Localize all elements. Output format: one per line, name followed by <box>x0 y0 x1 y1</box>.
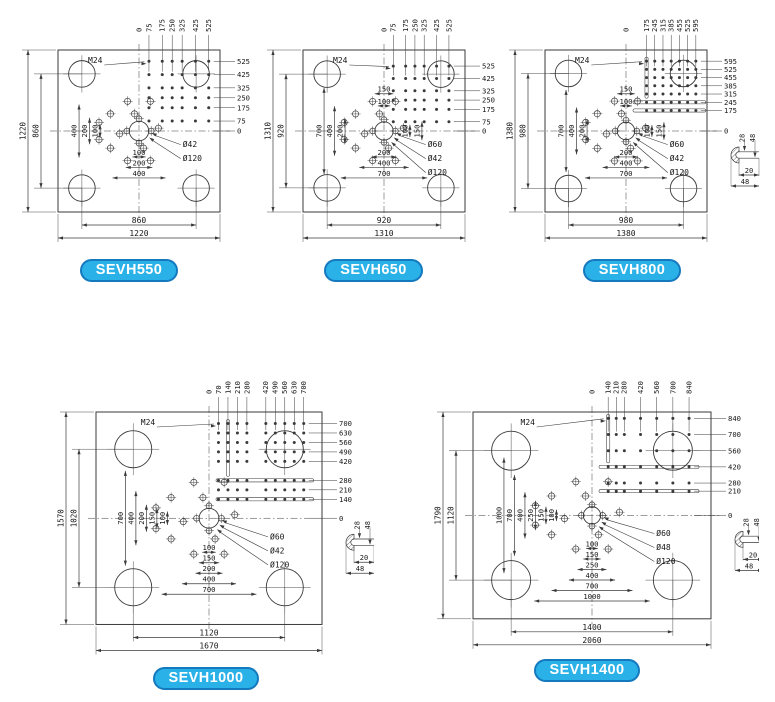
hole-diameter-label: Ø120 <box>427 167 446 177</box>
bolt-hole-dot <box>391 77 394 80</box>
dim-label: 400 <box>133 169 146 178</box>
bolt-hole-dot <box>236 431 239 434</box>
tick-label: 700 <box>339 419 352 428</box>
bolt-hole-dot <box>670 109 673 112</box>
bolt-hole-dot <box>226 488 229 491</box>
tick-label: 75 <box>388 23 397 32</box>
bolt-hole-dot <box>217 498 220 501</box>
tick-label: 175 <box>724 106 737 115</box>
dim-label: 2060 <box>582 636 601 645</box>
bolt-hole-dot <box>245 450 248 453</box>
bolt-hole-dot <box>161 106 164 109</box>
tick-label: 140 <box>339 495 352 504</box>
tick-label: 525 <box>482 62 495 71</box>
bolt-hole-dot <box>274 479 277 482</box>
tick-label: 0 <box>724 127 728 136</box>
bolt-hole-dot <box>639 465 642 468</box>
bolt-hole-dot <box>147 73 150 76</box>
dim-label: 400 <box>567 125 576 138</box>
bolt-hole-dot <box>217 488 220 491</box>
dim-label: 1570 <box>56 509 65 528</box>
tick-label: 0 <box>587 390 596 394</box>
tick-label: 175 <box>482 105 495 114</box>
bolt-hole-dot <box>171 96 174 99</box>
bolt-hole-dot <box>422 120 425 123</box>
bolt-hole-dot <box>264 450 267 453</box>
plate-drawing-layer: 0701402102804204905606307007006305604904… <box>56 381 374 654</box>
dim-label: 20 <box>745 167 753 175</box>
plate-drawing-layer: 0140210280420560700840840700560420280210… <box>433 381 759 649</box>
bolt-hole-dot <box>447 89 450 92</box>
bolt-hole-dot <box>181 96 184 99</box>
dim-label: 150 <box>203 554 216 563</box>
bolt-hole-dot <box>607 449 610 452</box>
bolt-hole-dot <box>302 460 305 463</box>
tick-label: 0 <box>482 127 486 136</box>
bolt-hole-dot <box>694 109 697 112</box>
bolt-hole-dot <box>447 77 450 80</box>
bolt-hole-dot <box>236 460 239 463</box>
bolt-hole-dot <box>422 77 425 80</box>
top-row: 075175250325425525525425325250175750M241… <box>0 6 775 282</box>
bolt-hole-dot <box>283 431 286 434</box>
dim-label: 860 <box>31 124 40 138</box>
bolt-hole-dot <box>688 465 691 468</box>
bolt-hole-dot <box>694 68 697 71</box>
tick-label: 210 <box>339 485 352 494</box>
bolt-hole-dot <box>661 76 664 79</box>
dim-label: 100 <box>547 509 556 522</box>
bolt-hole-dot <box>391 89 394 92</box>
bolt-hole-dot <box>181 106 184 109</box>
tick-label: 840 <box>684 381 693 394</box>
dim-label: 150 <box>654 125 663 138</box>
tick-label: 490 <box>339 448 352 457</box>
dim-label: 920 <box>276 124 285 138</box>
bolt-hole-dot <box>264 431 267 434</box>
dim-label: 1670 <box>199 641 218 650</box>
dim-label: 150 <box>377 85 390 94</box>
tick-label: 560 <box>728 446 741 455</box>
tick-label: 425 <box>191 19 200 32</box>
bolt-hole-dot <box>678 93 681 96</box>
bolt-hole-dot <box>194 106 197 109</box>
bolt-hole-dot <box>245 498 248 501</box>
bolt-hole-dot <box>194 86 197 89</box>
bolt-hole-dot <box>293 450 296 453</box>
bolt-hole-dot <box>293 441 296 444</box>
bolt-hole-dot <box>404 108 407 111</box>
tick-label: 250 <box>237 93 250 102</box>
bolt-hole-dot <box>607 433 610 436</box>
bolt-hole-dot <box>435 77 438 80</box>
dim-label: 400 <box>377 158 390 167</box>
dim-label: 48 <box>741 178 749 186</box>
tick-label: 420 <box>728 462 741 471</box>
bolt-hole-dot <box>274 460 277 463</box>
bolt-hole-dot <box>226 498 229 501</box>
bolt-hole-dot <box>264 498 267 501</box>
bolt-hole-dot <box>615 465 618 468</box>
dim-label: 980 <box>518 124 527 138</box>
bolt-hole-dot <box>435 89 438 92</box>
dim-label: 200 <box>377 148 390 157</box>
bolt-hole-dot <box>404 89 407 92</box>
dim-label: 200 <box>137 512 146 525</box>
bolt-hole-dot <box>217 450 220 453</box>
bolt-hole-dot <box>207 96 210 99</box>
dim-label: 400 <box>324 125 333 138</box>
tick-label: 525 <box>444 19 453 32</box>
bolt-hole-dot <box>274 488 277 491</box>
detail-dim-label: 28 <box>739 134 747 142</box>
thread-size-label: M24 <box>333 56 348 65</box>
dim-label: 700 <box>314 125 323 138</box>
bolt-hole-dot <box>293 431 296 434</box>
bolt-hole-dot <box>645 93 648 96</box>
dim-label: 200 <box>133 158 146 167</box>
bolt-hole-dot <box>678 109 681 112</box>
bolt-hole-dot <box>274 498 277 501</box>
bolt-hole-dot <box>661 84 664 87</box>
bolt-hole-dot <box>694 101 697 104</box>
plate-drawing-sevh1400: 0140210280420560700840840700560420280210… <box>415 370 759 656</box>
tick-label: 325 <box>482 86 495 95</box>
dim-label: 20 <box>749 551 757 559</box>
bolt-hole-dot <box>283 498 286 501</box>
platen-drawings-board: 075175250325425525525425325250175750M241… <box>0 0 775 702</box>
bolt-hole-dot <box>264 460 267 463</box>
detail-dim-label: 48 <box>753 518 759 526</box>
bolt-hole-dot <box>678 68 681 71</box>
bolt-hole-dot <box>283 441 286 444</box>
tick-label: 0 <box>134 28 143 32</box>
tick-label: 630 <box>290 381 299 394</box>
edge-slot-section <box>735 531 743 547</box>
tick-label: 630 <box>339 429 352 438</box>
tick-label: 75 <box>237 117 246 126</box>
bolt-hole-dot <box>694 93 697 96</box>
bolt-hole-dot <box>623 490 626 493</box>
bolt-hole-dot <box>688 490 691 493</box>
bolt-hole-dot <box>671 465 674 468</box>
thread-size-label: M24 <box>521 418 536 427</box>
tick-label: 175 <box>158 19 167 32</box>
bolt-hole-dot <box>302 479 305 482</box>
bolt-hole-dot <box>181 120 184 123</box>
bolt-hole-dot <box>639 433 642 436</box>
tick-label: 0 <box>339 514 343 523</box>
dim-label: 100 <box>133 148 146 157</box>
tick-label: 0 <box>621 28 630 32</box>
dim-label: 1790 <box>433 506 442 525</box>
bolt-hole-dot <box>623 449 626 452</box>
bolt-hole-dot <box>686 109 689 112</box>
bolt-hole-dot <box>615 490 618 493</box>
dim-label: 48 <box>745 562 753 570</box>
bolt-hole-dot <box>653 93 656 96</box>
bolt-hole-dot <box>147 96 150 99</box>
bolt-hole-dot <box>391 99 394 102</box>
bolt-hole-dot <box>645 68 648 71</box>
thread-size-label: M24 <box>575 56 590 65</box>
bolt-hole-dot <box>678 76 681 79</box>
bolt-hole-dot <box>435 108 438 111</box>
tick-label: 0 <box>379 28 388 32</box>
bolt-hole-dot <box>245 460 248 463</box>
bolt-hole-dot <box>653 101 656 104</box>
bolt-hole-dot <box>422 108 425 111</box>
dim-label: 700 <box>505 509 514 522</box>
tick-label: 420 <box>636 381 645 394</box>
bolt-hole-dot <box>447 120 450 123</box>
dim-label: 150 <box>536 509 545 522</box>
tick-label: 75 <box>482 117 491 126</box>
tick-label: 700 <box>668 381 677 394</box>
dim-label: 100 <box>642 125 651 138</box>
bolt-hole-dot <box>171 73 174 76</box>
tick-label: 280 <box>339 476 352 485</box>
bolt-hole-dot <box>147 106 150 109</box>
dim-label: 400 <box>69 125 78 138</box>
dim-label: 700 <box>620 169 633 178</box>
tick-label: 700 <box>728 430 741 439</box>
hole-diameter-label: Ø42 <box>427 153 442 163</box>
bolt-hole-dot <box>236 441 239 444</box>
bolt-hole-dot <box>302 450 305 453</box>
tick-label: 0 <box>237 127 241 136</box>
dim-label: 1310 <box>374 229 393 238</box>
tick-label: 560 <box>652 381 661 394</box>
bolt-hole-dot <box>302 488 305 491</box>
dim-label: 150 <box>412 125 421 138</box>
bolt-hole-dot <box>447 99 450 102</box>
bolt-hole-dot <box>694 84 697 87</box>
bolt-hole-dot <box>655 433 658 436</box>
bolt-hole-dot <box>226 479 229 482</box>
bolt-hole-dot <box>615 433 618 436</box>
hole-diameter-label: Ø60 <box>270 531 285 541</box>
hole-diameter-label: Ø48 <box>656 542 671 552</box>
dim-label: 400 <box>515 509 524 522</box>
bolt-hole-dot <box>236 488 239 491</box>
dim-label: 250 <box>586 560 599 569</box>
tick-label: 525 <box>237 57 250 66</box>
bolt-hole-dot <box>245 479 248 482</box>
bolt-hole-dot <box>147 120 150 123</box>
bottom-row: 0701402102804204905606307007006305604904… <box>0 370 775 690</box>
bolt-hole-dot <box>217 460 220 463</box>
detail-dim-label: 48 <box>749 134 757 142</box>
bolt-hole-dot <box>404 99 407 102</box>
bolt-hole-dot <box>435 120 438 123</box>
bolt-hole-dot <box>653 76 656 79</box>
bolt-hole-dot <box>688 449 691 452</box>
figure-sevh550: 075175250325425525525425325250175750M241… <box>8 6 250 282</box>
bolt-hole-dot <box>607 490 610 493</box>
hole-diameter-label: Ø60 <box>427 139 442 149</box>
detail-dim-label: 28 <box>354 521 362 529</box>
bolt-hole-dot <box>645 84 648 87</box>
plate-drawing-sevh1000: 0701402102804204905606307007006305604904… <box>38 370 374 664</box>
bolt-hole-dot <box>694 76 697 79</box>
bolt-hole-dot <box>245 488 248 491</box>
tick-label: 75 <box>144 23 153 32</box>
dim-label: 200 <box>203 564 216 573</box>
tick-label: 175 <box>401 19 410 32</box>
bolt-hole-dot <box>686 68 689 71</box>
plate-drawing-sevh550: 075175250325425525525425325250175750M241… <box>8 6 250 256</box>
tick-label: 325 <box>419 19 428 32</box>
bolt-hole-dot <box>207 106 210 109</box>
bolt-hole-dot <box>686 93 689 96</box>
bolt-hole-dot <box>236 479 239 482</box>
bolt-hole-dot <box>245 431 248 434</box>
thread-size-label: M24 <box>141 418 156 427</box>
hole-diameter-label: Ø42 <box>670 153 685 163</box>
tick-label: 0 <box>204 390 213 394</box>
hole-diameter-label: Ø60 <box>656 528 671 538</box>
dim-label: 20 <box>360 554 368 562</box>
bolt-hole-dot <box>181 86 184 89</box>
bolt-hole-dot <box>293 460 296 463</box>
bolt-hole-dot <box>670 76 673 79</box>
detail-dim-label: 28 <box>743 518 751 526</box>
dim-label: 200 <box>620 148 633 157</box>
tick-label: 425 <box>431 19 440 32</box>
tick-label: 595 <box>691 19 700 32</box>
bolt-hole-dot <box>404 77 407 80</box>
tick-label: 420 <box>261 381 270 394</box>
bolt-hole-dot <box>391 120 394 123</box>
bolt-hole-dot <box>264 479 267 482</box>
dim-label: 1380 <box>505 121 514 140</box>
dim-label: 150 <box>586 550 599 559</box>
bolt-hole-dot <box>207 120 210 123</box>
bolt-hole-dot <box>161 73 164 76</box>
bolt-hole-dot <box>413 120 416 123</box>
bolt-hole-dot <box>655 490 658 493</box>
bolt-hole-dot <box>447 108 450 111</box>
bolt-hole-dot <box>283 450 286 453</box>
bolt-hole-dot <box>413 89 416 92</box>
bolt-hole-dot <box>236 498 239 501</box>
t-slot <box>599 490 699 493</box>
dim-label: 150 <box>620 85 633 94</box>
dim-label: 1380 <box>616 229 635 238</box>
dim-label: 200 <box>577 125 586 138</box>
hole-diameter-label: Ø120 <box>270 559 289 569</box>
bolt-hole-dot <box>623 433 626 436</box>
bolt-hole-dot <box>413 77 416 80</box>
bolt-hole-dot <box>686 101 689 104</box>
model-badge-sevh550: SEVH550 <box>80 259 178 282</box>
dim-label: 400 <box>203 575 216 584</box>
bolt-hole-dot <box>194 96 197 99</box>
bolt-hole-dot <box>653 109 656 112</box>
dim-label: 1220 <box>129 229 148 238</box>
bolt-hole-dot <box>645 109 648 112</box>
bolt-hole-dot <box>422 89 425 92</box>
bolt-hole-dot <box>207 73 210 76</box>
bolt-hole-dot <box>302 498 305 501</box>
dim-label: 1120 <box>199 628 218 637</box>
bolt-hole-dot <box>670 68 673 71</box>
plate-drawing-layer: 0175245315385455525595595525455385315245… <box>505 19 759 242</box>
bolt-hole-dot <box>688 482 691 485</box>
bolt-hole-dot <box>226 431 229 434</box>
bolt-hole-dot <box>302 431 305 434</box>
detail-dim-label: 48 <box>364 521 372 529</box>
bolt-hole-dot <box>653 84 656 87</box>
thread-size-label: M24 <box>88 56 103 65</box>
tick-label: 560 <box>280 381 289 394</box>
tick-label: 250 <box>482 96 495 105</box>
bolt-hole-dot <box>283 488 286 491</box>
bolt-hole-dot <box>226 460 229 463</box>
bolt-hole-dot <box>645 101 648 104</box>
dim-label: 1020 <box>69 509 78 528</box>
figure-sevh800: 0175245315385455525595595525455385315245… <box>497 6 767 282</box>
bolt-hole-dot <box>661 101 664 104</box>
bolt-hole-dot <box>293 488 296 491</box>
model-badge-sevh1000: SEVH1000 <box>153 667 260 690</box>
bolt-hole-dot <box>274 441 277 444</box>
bolt-hole-dot <box>655 482 658 485</box>
bolt-hole-dot <box>671 490 674 493</box>
bolt-hole-dot <box>623 482 626 485</box>
tick-label: 250 <box>410 19 419 32</box>
bolt-hole-dot <box>147 86 150 89</box>
plate-drawing-layer: 075175250325425525525425325250175750M241… <box>18 19 250 242</box>
bolt-hole-dot <box>226 441 229 444</box>
bolt-hole-dot <box>161 86 164 89</box>
bolt-hole-dot <box>661 93 664 96</box>
tick-label: 525 <box>204 19 213 32</box>
tick-label: 175 <box>237 103 250 112</box>
bolt-hole-dot <box>181 73 184 76</box>
tick-label: 325 <box>237 83 250 92</box>
dim-label: 100 <box>586 539 599 548</box>
bolt-hole-dot <box>264 441 267 444</box>
tick-label: 140 <box>223 381 232 394</box>
tick-label: 250 <box>168 19 177 32</box>
figure-sevh1400: 0140210280420560700840840700560420280210… <box>415 370 759 682</box>
bolt-hole-dot <box>670 93 673 96</box>
tick-label: 425 <box>237 70 250 79</box>
bolt-hole-dot <box>686 84 689 87</box>
bolt-hole-dot <box>639 490 642 493</box>
tick-label: 490 <box>271 381 280 394</box>
tick-label: 210 <box>728 487 741 496</box>
bolt-hole-dot <box>171 120 174 123</box>
dim-label: 1000 <box>494 507 503 524</box>
bolt-hole-dot <box>283 479 286 482</box>
bolt-hole-dot <box>226 450 229 453</box>
bolt-hole-dot <box>293 479 296 482</box>
bolt-hole-dot <box>607 482 610 485</box>
tick-label: 420 <box>339 457 352 466</box>
tick-label: 70 <box>214 385 223 394</box>
hole-diameter-label: Ø120 <box>656 556 675 566</box>
dim-label: 860 <box>132 216 147 225</box>
bolt-hole-dot <box>283 460 286 463</box>
bolt-hole-dot <box>623 465 626 468</box>
dim-label: 100 <box>377 97 390 106</box>
model-badge-sevh650: SEVH650 <box>324 259 422 282</box>
dim-label: 1120 <box>446 506 455 525</box>
bolt-hole-dot <box>245 441 248 444</box>
